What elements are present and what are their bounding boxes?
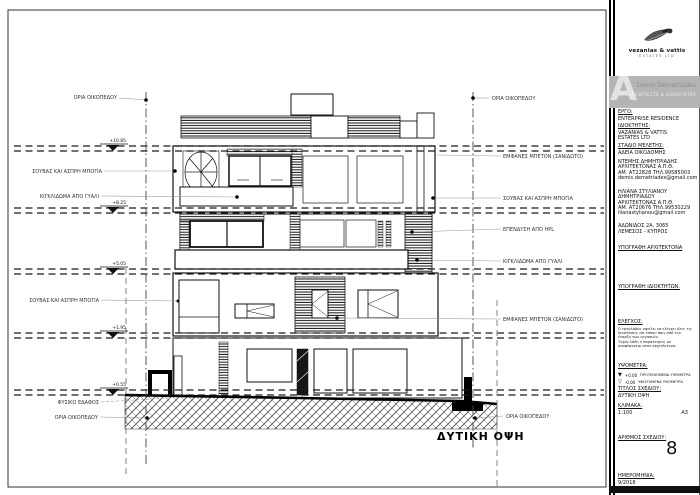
logo-company-subtitle: ESTATES LTD	[618, 54, 696, 60]
sheet-number-field: ΑΡΙΘΜΟΣ ΣΧΕΔΙΟΥ:	[618, 436, 696, 443]
elevation-value: +10.85	[109, 138, 126, 144]
roof-louver-right	[348, 116, 400, 138]
check-field: ΕΛΕΓΧΟΣ: Ο εργολάβος οφείλει να ελέγχει …	[618, 320, 696, 349]
open-level-marker-icon: ▽	[618, 380, 622, 386]
drawing-title: ΔΥΤΙΚΗ ΟΨΗ	[437, 430, 525, 443]
existing-level-text: ΥΦΙΣΤΑΜΕΝΑ ΥΨΟΜΕΤΡΑ	[638, 380, 683, 386]
title-block-bottom-bar	[609, 486, 700, 493]
stage-value: ΑΔΕΙΑ ΟΙΚΟΔΟΜΗΣ	[618, 151, 696, 157]
stage-field: ΣΤΑΔΙΟ ΜΕΛΕΤΗΣ: ΑΔΕΙΑ ΟΙΚΟΔΟΜΗΣ	[618, 144, 696, 156]
brand-architect-name: Demis Demetriades	[637, 83, 697, 89]
label-plaster-left-lower: ΣΟΥΒΑΣ ΚΑΙ ΑΣΠΡΗ ΜΠΟΓΙΑ	[29, 298, 99, 304]
proposed-level-value: +0.00	[625, 373, 637, 379]
label-plot-boundary-left-lower: ΟΡΙΑ ΟΙΚΟΠΕΔΟΥ	[55, 415, 99, 421]
label-natural-ground: ΦΥΣΙΚΟ ΕΔΑΦΟΣ	[58, 400, 99, 406]
label-exposed-concrete-lower: ΕΜΦΑΝΕΣ ΜΠΕΤΟΝ (ΣΑΝΙΔΩΤΟ)	[503, 317, 583, 323]
title-block-edge-line	[609, 0, 611, 495]
filled-level-marker-icon: ▼	[618, 373, 622, 379]
elevation-value: +8.25	[112, 200, 126, 206]
title-block-edge-line2	[613, 0, 615, 495]
company-logo-block: vezanias & vattis ESTATES LTD	[618, 24, 696, 60]
label-hpl-cladding: ΕΠΕΝΔΥΣΗ ΑΠΟ HPL	[503, 227, 554, 233]
project-label: ΕΡΓΟ:	[618, 110, 633, 116]
brand-architect-subtitle: ARCHITECTS & ASSOCIATES	[629, 92, 696, 98]
stage-label: ΣΤΑΔΙΟ ΜΕΛΕΤΗΣ:	[618, 144, 664, 150]
proposed-level-text: ΠΡΟΤΕΙΝΟΜΕΝΑ ΥΨΟΜΕΤΡΑ	[640, 373, 690, 379]
project-field: ΕΡΓΟ: ENTERPRISE RESIDENCE	[618, 110, 696, 122]
owner-signature-field: ΥΠΟΓΡΑΦΗ ΙΔΙΟΚΤΗΤΩΝ.	[618, 285, 696, 292]
label-plaster-left-upper: ΣΟΥΒΑΣ ΚΑΙ ΑΣΠΡΗ ΜΠΟΓΙΑ	[32, 169, 102, 175]
paper-size: A3	[681, 411, 688, 417]
architect-2-block: ΗΛΙΑΝΑ ΣΤΥΛΙΑΝΟΥ ΔΗΜΗΤΡΙΑΔΟΥ ΑΡΧΙΤΕΚΤΟΝΑ…	[618, 190, 696, 216]
scale-label: ΚΛΙΜΑΚΑ:	[618, 404, 642, 410]
label-plaster-right: ΣΟΥΒΑΣ ΚΑΙ ΑΣΠΡΗ ΜΠΟΓΙΑ	[503, 196, 573, 202]
elevation-value: +0.55	[112, 382, 126, 388]
project-value: ENTERPRISE RESIDENCE	[618, 117, 696, 123]
hpl-cladding	[405, 214, 432, 277]
architect-1-email: demis.demetriades@gmail.com	[618, 176, 696, 181]
elevation-drawing: +10.85 +8.25 +5.05 +1.95 +0.55 ΟΡΙΑ ΟΙΚΟ…	[0, 0, 610, 495]
date-label: ΗΜΕΡΟΜΗΝΙΑ:	[618, 474, 655, 480]
label-glass-railing-left: ΚΙΓΚΛΙΔΩΜΑ ΑΠΟ ΓΥΑΛΙ	[40, 194, 99, 200]
existing-level-value: -0.00	[625, 380, 635, 386]
label-glass-railing-right: ΚΙΓΚΛΙΔΩΜΑ ΑΠΟ ΓΥΑΛΙ	[503, 259, 562, 265]
drawing-sheet-page: { "sheet": { "drawing_title": "ΔΥΤΙΚΗ ΟΨ…	[0, 0, 700, 495]
owner-signature-label: ΥΠΟΓΡΑΦΗ ΙΔΙΟΚΤΗΤΩΝ.	[618, 285, 680, 291]
architect-signature-field: ΥΠΟΓΡΑΦΗ ΑΡΧΙΤΕΚΤΟΝΑ	[618, 246, 696, 253]
label-plot-boundary-right-lower: ΟΡΙΑ ΟΙΚΟΠΕΔΟΥ	[506, 414, 550, 420]
owner-label: ΙΔΙΟΚΤΗΤΗΣ:	[618, 124, 650, 130]
existing-level-row: ▽ -0.00 ΥΦΙΣΤΑΜΕΝΑ ΥΨΟΜΕΤΡΑ	[618, 380, 696, 386]
levels-label: ΥΨΟΜΕΤΡΑ:	[618, 364, 648, 370]
architect-signature-label: ΥΠΟΓΡΑΦΗ ΑΡΧΙΤΕΚΤΟΝΑ	[618, 246, 682, 252]
label-plot-boundary-right: ΟΡΙΑ ΟΙΚΟΠΕΔΟΥ	[492, 96, 536, 102]
title-block: vezanias & vattis ESTATES LTD A Demis De…	[609, 0, 700, 495]
drawing-title-field: ΤΙΤΛΟΣ ΣΧΕΔΙΟΥ: ΔΥΤΙΚΗ ΟΨΗ	[618, 387, 696, 399]
owner-field: ΙΔΙΟΚΤΗΤΗΣ: VAZANIAS & VATTIS ESTATES LT…	[618, 124, 696, 142]
architect-brand-banner: A Demis Demetriades ARCHITECTS & ASSOCIA…	[609, 76, 700, 108]
check-note-line: αναφέρονται στον αρχιτέκτονα.	[618, 344, 696, 348]
address-line-2: ΛΕΜΕΣΟΣ - ΚΥΠΡΟΣ	[618, 230, 696, 236]
elevation-value: +1.95	[112, 325, 126, 331]
owner-value-2: ESTATES LTD	[618, 136, 696, 142]
date-field: ΗΜΕΡΟΜΗΝΙΑ: 9/2018	[618, 474, 696, 486]
scale-field: ΚΛΙΜΑΚΑ: 1:100 A3	[618, 404, 696, 416]
office-address: ΑΔΩΝΙΔΟΣ 2Α, 3065 ΛΕΜΕΣΟΣ - ΚΥΠΡΟΣ	[618, 224, 696, 235]
drawing-title-label: ΤΙΤΛΟΣ ΣΧΕΔΙΟΥ:	[618, 387, 661, 393]
scale-value: 1:100	[618, 411, 632, 417]
check-label: ΕΛΕΓΧΟΣ:	[618, 320, 643, 326]
bird-logo-icon	[640, 24, 674, 46]
architect-2-email: ilianastylianou@gmail.com	[618, 211, 696, 216]
balcony-2f	[175, 250, 408, 269]
levels-legend: ΥΨΟΜΕΤΡΑ: ▼ +0.00 ΠΡΟΤΕΙΝΟΜΕΝΑ ΥΨΟΜΕΤΡΑ …	[618, 364, 696, 386]
drawing-title-value: ΔΥΤΙΚΗ ΟΨΗ	[618, 394, 696, 400]
label-exposed-concrete-upper: ΕΜΦΑΝΕΣ ΜΠΕΤΟΝ (ΣΑΝΙΔΩΤΟ)	[503, 154, 583, 160]
roof-louver-left	[181, 116, 311, 138]
elevation-value: +5.05	[112, 261, 126, 267]
label-plot-boundary-left: ΟΡΙΑ ΟΙΚΟΠΕΔΟΥ	[74, 95, 118, 101]
architect-1-block: ΝΤΕΜΗΣ ΔΗΜΗΤΡΙΑΔΗΣ ΑΡΧΙΤΕΚΤΟΝΑΣ Α.Π.Θ. Α…	[618, 160, 696, 181]
sheet-number-label: ΑΡΙΘΜΟΣ ΣΧΕΔΙΟΥ:	[618, 436, 666, 442]
proposed-level-row: ▼ +0.00 ΠΡΟΤΕΙΝΟΜΕΝΑ ΥΨΟΜΕΤΡΑ	[618, 373, 696, 379]
sheet-number: 8	[666, 446, 700, 452]
